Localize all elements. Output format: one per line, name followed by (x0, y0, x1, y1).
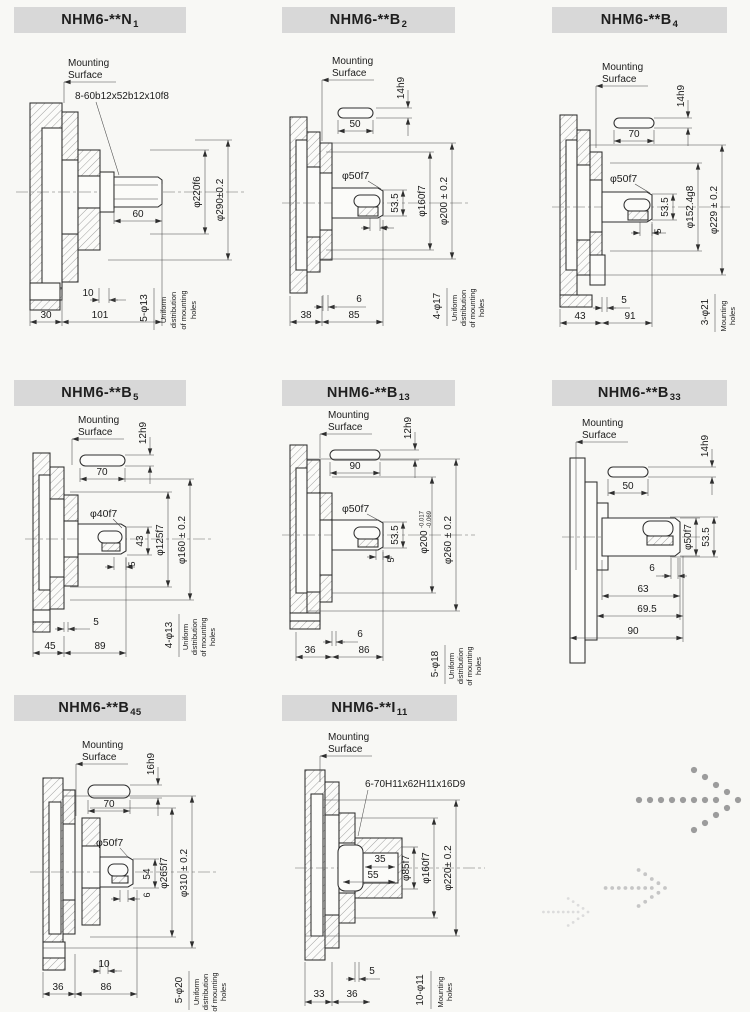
mounting-holes-note: of mounting (179, 290, 188, 329)
drawing-geometry: MountingSurface8-60b12x52b12x10f860φ220f… (16, 58, 246, 330)
dimension-label: 53.5 (390, 193, 401, 213)
dimension-label: 38 (300, 310, 312, 321)
dimension-label: 35 (374, 854, 386, 865)
mounting-surface-label: Mounting (602, 62, 643, 73)
spline-spec-label: 8-60b12x52b12x10f8 (75, 91, 169, 102)
diameter-label: φ290±0.2 (215, 178, 226, 221)
dimension-label: 36 (52, 982, 64, 993)
diameter-label: φ200 ± 0.2 (439, 177, 450, 226)
mounting-surface-label: Surface (68, 70, 103, 81)
dotted-arrow-icon (604, 868, 667, 908)
dimension-label: 6 (357, 629, 363, 640)
dimension-label: 89 (94, 641, 106, 652)
drawing-geometry: MountingSurface14h970φ50f753.55φ152.4g8φ… (552, 62, 737, 332)
mounting-surface-label: Surface (82, 752, 117, 763)
key-dimension-label: 70 (628, 129, 640, 140)
mounting-holes-note: of mounting (199, 617, 208, 656)
key-dimension-label: 14h9 (396, 76, 407, 99)
dimension-label: 60 (132, 209, 144, 220)
mounting-surface-label: Mounting (68, 58, 109, 69)
dimension-label: 86 (100, 982, 112, 993)
mounting-surface-label: Mounting (328, 410, 369, 421)
variant-panel-6: NHM6-**B45MountingSurface16h970φ50f7546φ… (0, 690, 265, 1012)
key-dimension-label: 50 (349, 119, 361, 130)
variant-panel-2: NHM6-**B4MountingSurface14h970φ50f753.55… (540, 0, 750, 370)
technical-drawing: MountingSurface12h990φ50f753.55φ200-0.01… (270, 370, 505, 690)
key-dimension-label: 12h9 (138, 421, 149, 444)
dotted-arrow-icon (636, 767, 741, 833)
dimension-label: 85 (348, 310, 360, 321)
technical-drawing: MountingSurface14h970φ50f753.55φ152.4g8φ… (540, 0, 750, 370)
technical-drawing: MountingSurface8-60b12x52b12x10f860φ220f… (0, 0, 265, 370)
technical-drawing: MountingSurface16h970φ50f7546φ265f7φ310 … (0, 690, 265, 1012)
mounting-holes-count: 3-φ21 (700, 298, 711, 325)
dimension-label: 5 (93, 617, 99, 628)
mounting-holes-note: of mounting (465, 646, 474, 685)
drawing-geometry: MountingSurface14h950φ50f753.54φ160f7φ20… (282, 56, 486, 328)
dimension-label: 30 (40, 310, 52, 321)
mounting-holes-note: Uniform (181, 624, 190, 650)
key-dimension-label: 90 (349, 461, 361, 472)
mounting-surface-label: Mounting (78, 415, 119, 426)
technical-drawing: MountingSurface12h970φ40f7435φ125f7φ160 … (0, 370, 265, 690)
mounting-holes-note: Uniform (192, 979, 201, 1005)
dimension-label: 6 (356, 294, 362, 305)
mounting-holes-count: 4-φ13 (164, 621, 175, 648)
mounting-surface-label: Surface (328, 744, 363, 755)
technical-drawing: MountingSurface6-70H11x62H11x16D93555φ85… (270, 690, 510, 1012)
mounting-holes-note: Uniform (159, 297, 168, 323)
dimension-label: 53.5 (660, 197, 671, 217)
tolerance-label: -0.017 (420, 510, 426, 528)
mounting-holes-count: 5-φ18 (430, 650, 441, 677)
dimension-label: 45 (44, 641, 56, 652)
mounting-surface-label: Surface (582, 430, 617, 441)
diameter-label: φ220± 0.2 (443, 845, 454, 891)
key-dimension-label: 16h9 (146, 752, 157, 775)
mounting-holes-note: holes (477, 299, 486, 317)
dotted-arrow-icon (542, 897, 589, 927)
key-dimension-label: 14h9 (700, 434, 711, 457)
diameter-label: φ152.4g8 (685, 185, 696, 228)
diameter-label: φ200 (419, 530, 430, 554)
dimension-label: 36 (304, 645, 316, 656)
mounting-holes-note: Uniform (447, 653, 456, 679)
dimension-label: 53.5 (390, 525, 401, 545)
dimension-label: φ40f7 (90, 508, 117, 520)
variant-panel-3: NHM6-**B5MountingSurface12h970φ40f7435φ1… (0, 370, 265, 690)
dimension-label: 63 (637, 584, 649, 595)
mounting-surface-label: Mounting (82, 740, 123, 751)
mounting-holes-note: holes (219, 983, 228, 1001)
mounting-surface-label: Surface (328, 422, 363, 433)
technical-drawing: MountingSurface14h950φ50f753.54φ160f7φ20… (270, 0, 505, 370)
diameter-label: φ229 ± 0.2 (709, 186, 720, 235)
dimension-label: φ50f7 (683, 524, 694, 550)
diameter-label: φ160 ± 0.2 (177, 516, 188, 565)
dimension-label: 55 (367, 870, 379, 881)
dimension-label: 33 (313, 989, 325, 1000)
dimension-label: 10 (98, 959, 110, 970)
mounting-holes-note: Uniform (450, 295, 459, 321)
mounting-holes-count: 5-φ13 (138, 294, 150, 322)
mounting-holes-note: holes (474, 657, 483, 675)
mounting-holes-note: holes (728, 307, 737, 325)
diameter-label: φ160f7 (421, 852, 432, 884)
dimension-label: 43 (135, 535, 146, 547)
dimension-label: 69.5 (637, 604, 657, 615)
mounting-holes-note: distribution (169, 292, 178, 328)
mounting-holes-note: distribution (459, 290, 468, 326)
mounting-holes-note: distribution (456, 648, 465, 684)
drawing-geometry: MountingSurface14h950φ50f753.566369.590 (562, 418, 718, 663)
dimension-label: 54 (142, 868, 153, 880)
diameter-label: φ125f7 (155, 524, 166, 556)
mounting-holes-note: Mounting (719, 301, 728, 332)
diameter-label: φ220f6 (192, 176, 203, 208)
tolerance-label: -0.069 (427, 510, 433, 528)
dimension-label: 5 (653, 228, 663, 233)
mounting-holes-note: distribution (201, 974, 210, 1010)
dotted-arrows-decoration (500, 740, 750, 1012)
mounting-surface-label: Mounting (332, 56, 373, 67)
dimension-label: 6 (142, 892, 152, 897)
dimension-label: 4 (380, 225, 390, 230)
variant-panel-1: NHM6-**B2MountingSurface14h950φ50f753.54… (270, 0, 505, 370)
dimension-label: φ50f7 (96, 837, 123, 849)
diameter-label: φ265f7 (159, 857, 170, 889)
key-dimension-label: 70 (96, 467, 108, 478)
diameter-label: φ260 ± 0.2 (443, 516, 454, 565)
variant-panel-5: NHM6-**B33MountingSurface14h950φ50f753.5… (540, 370, 750, 690)
mounting-surface-label: Mounting (582, 418, 623, 429)
dimension-label: 101 (92, 310, 109, 321)
dimension-label: 36 (346, 989, 358, 1000)
dimension-label: 90 (627, 626, 639, 637)
mounting-holes-note: of mounting (210, 972, 219, 1011)
mounting-surface-label: Surface (332, 68, 367, 79)
dimension-label: 5 (127, 561, 137, 566)
mounting-holes-count: 10-φ11 (415, 974, 426, 1006)
dimension-label: 53.5 (701, 527, 712, 547)
dimension-label: φ50f7 (342, 170, 369, 182)
drawing-geometry: MountingSurface12h970φ40f7435φ125f7φ160 … (25, 415, 217, 657)
mounting-holes-note: holes (445, 983, 454, 1001)
mounting-holes-note: holes (208, 628, 217, 646)
key-dimension-label: 70 (103, 799, 115, 810)
dimension-label: 5 (621, 295, 627, 306)
key-dimension-label: 50 (622, 481, 634, 492)
variant-panel-4: NHM6-**B13MountingSurface12h990φ50f753.5… (270, 370, 505, 690)
mounting-holes-note: distribution (190, 619, 199, 655)
mounting-holes-count: 4-φ17 (432, 292, 443, 319)
dimension-label: φ50f7 (342, 503, 369, 515)
drawing-geometry: MountingSurface16h970φ50f7546φ265f7φ310 … (30, 740, 228, 1012)
dimension-label: 91 (624, 311, 636, 322)
mounting-holes-note: holes (189, 301, 198, 319)
mounting-surface-label: Surface (602, 74, 637, 85)
dimension-label: 10 (82, 288, 94, 299)
mounting-holes-note: Mounting (436, 977, 445, 1008)
dimension-label: 6 (649, 563, 655, 574)
variant-panel-0: NHM6-**N1MountingSurface8-60b12x52b12x10… (0, 0, 265, 370)
dimension-label: 5 (386, 557, 396, 562)
mounting-holes-count: 5-φ20 (174, 976, 185, 1003)
key-dimension-label: 14h9 (676, 84, 687, 107)
technical-drawing: MountingSurface14h950φ50f753.566369.590 (540, 370, 750, 690)
spline-spec-label: 6-70H11x62H11x16D9 (365, 779, 466, 790)
dimension-label: φ50f7 (610, 173, 637, 185)
diameter-label: φ85f7 (401, 855, 412, 881)
catalog-page: NHM6-**N1MountingSurface8-60b12x52b12x10… (0, 0, 750, 1012)
mounting-surface-label: Surface (78, 427, 113, 438)
diameter-label: φ310 ± 0.2 (179, 849, 190, 898)
diameter-label: φ160f7 (417, 185, 428, 217)
dimension-label: 86 (358, 645, 370, 656)
dimension-label: 5 (369, 966, 375, 977)
dimension-label: 43 (574, 311, 586, 322)
variant-panel-7: NHM6-**I11MountingSurface6-70H11x62H11x1… (270, 690, 510, 1012)
mounting-holes-note: of mounting (468, 288, 477, 327)
key-dimension-label: 12h9 (403, 416, 414, 439)
mounting-surface-label: Mounting (328, 732, 369, 743)
drawing-geometry: MountingSurface12h990φ50f753.55φ200-0.01… (282, 410, 483, 686)
drawing-geometry: MountingSurface6-70H11x62H11x16D93555φ85… (295, 732, 485, 1009)
